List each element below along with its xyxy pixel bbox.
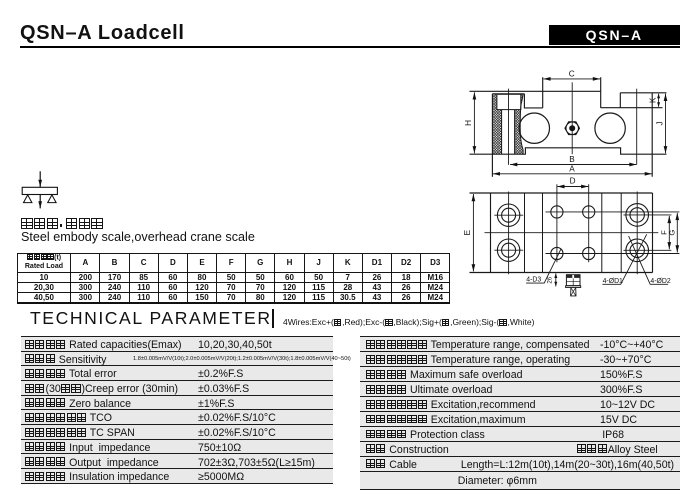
svg-text:J: J xyxy=(655,121,664,125)
svg-text:G: G xyxy=(667,230,676,236)
svg-text:4-D3: 4-D3 xyxy=(526,277,541,284)
svg-text:B: B xyxy=(569,155,575,164)
svg-text:4-ØD1: 4-ØD1 xyxy=(603,278,623,285)
svg-text:A: A xyxy=(569,165,575,174)
svg-text:D: D xyxy=(570,176,576,185)
svg-text:K: K xyxy=(648,97,657,103)
svg-text:H: H xyxy=(464,120,473,126)
svg-text:E: E xyxy=(463,229,472,235)
svg-text:C: C xyxy=(569,70,575,79)
svg-text:4-ØD2: 4-ØD2 xyxy=(650,278,670,285)
svg-text:26: 26 xyxy=(547,276,554,283)
